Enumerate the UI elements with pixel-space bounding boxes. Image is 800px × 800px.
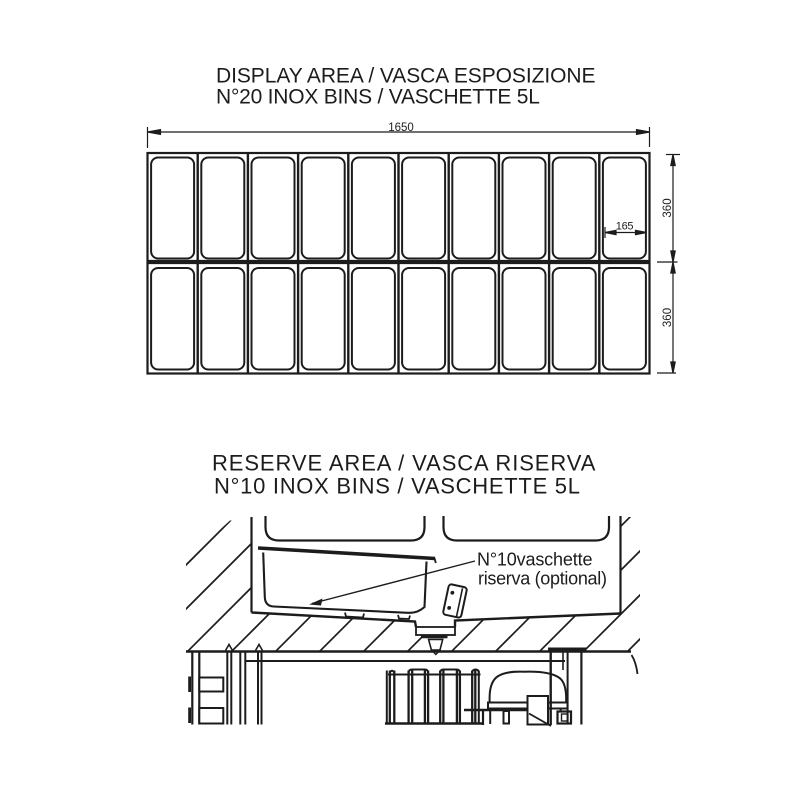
svg-text:360: 360 xyxy=(662,198,674,217)
svg-text:165: 165 xyxy=(616,221,634,233)
svg-text:N°10 INOX BINS / VASCHETTE 5L: N°10 INOX BINS / VASCHETTE 5L xyxy=(214,474,581,499)
svg-text:riserva (optional): riserva (optional) xyxy=(478,569,607,589)
svg-text:N°20 INOX BINS / VASCHETTE 5L: N°20 INOX BINS / VASCHETTE 5L xyxy=(216,86,540,109)
svg-text:360: 360 xyxy=(662,308,674,327)
svg-text:N°10vaschette: N°10vaschette xyxy=(477,550,592,570)
svg-text:RESERVE AREA / VASCA RISERVA: RESERVE AREA / VASCA RISERVA xyxy=(212,451,596,476)
svg-text:DISPLAY AREA / VASCA ESPOSIZIO: DISPLAY AREA / VASCA ESPOSIZIONE xyxy=(216,65,595,88)
